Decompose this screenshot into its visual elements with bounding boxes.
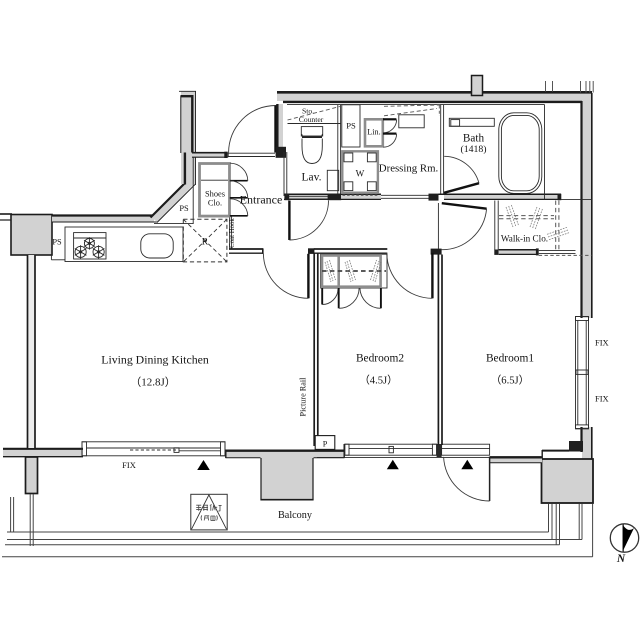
svg-text:（6.5J）: （6.5J） <box>491 374 530 387</box>
svg-text:Living Dining Kitchen: Living Dining Kitchen <box>101 353 209 367</box>
svg-text:Bedroom2: Bedroom2 <box>356 353 404 365</box>
svg-text:P: P <box>323 440 328 449</box>
svg-text:Lin.: Lin. <box>367 128 380 137</box>
svg-text:N: N <box>616 553 626 565</box>
svg-text:R: R <box>202 237 209 248</box>
svg-text:（12.8J）: （12.8J） <box>130 376 176 389</box>
svg-text:Counter: Counter <box>299 115 324 124</box>
svg-text:Bedroom1: Bedroom1 <box>486 353 534 365</box>
svg-text:Shoes: Shoes <box>205 190 225 199</box>
svg-text:Walk-in Clo.: Walk-in Clo. <box>501 234 548 244</box>
svg-text:Bath: Bath <box>463 133 485 145</box>
svg-text:PS: PS <box>346 121 356 131</box>
svg-text:Dressing Rm.: Dressing Rm. <box>379 163 438 175</box>
svg-text:Lav.: Lav. <box>301 172 321 184</box>
svg-text:FIX: FIX <box>595 338 609 348</box>
svg-text:PS: PS <box>52 238 62 247</box>
svg-text:（4.5J）: （4.5J） <box>359 374 398 387</box>
svg-text:W: W <box>356 169 365 179</box>
svg-text:Clo.: Clo. <box>208 199 222 208</box>
svg-text:Picture Rail: Picture Rail <box>299 377 308 417</box>
svg-text:PS: PS <box>179 204 189 213</box>
svg-text:Coat Hook: Coat Hook <box>229 218 236 248</box>
svg-text:(1418): (1418) <box>460 144 486 155</box>
svg-text:FIX: FIX <box>595 394 609 404</box>
svg-text:FIX: FIX <box>122 460 136 470</box>
svg-text:Balcony: Balcony <box>278 510 313 521</box>
svg-text:Entrance: Entrance <box>240 192 283 206</box>
